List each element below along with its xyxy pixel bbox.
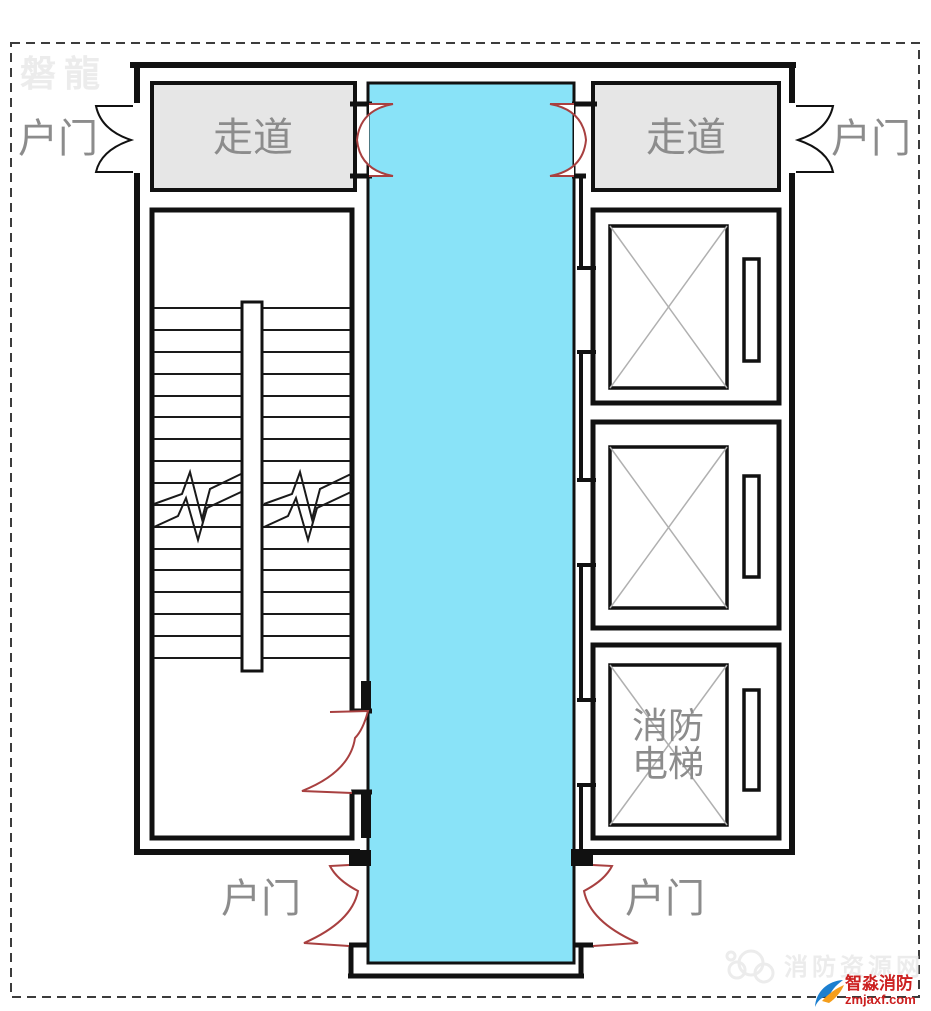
- door-label-top-left: 户门: [18, 117, 98, 161]
- stair-center-rail: [242, 302, 262, 671]
- elevator-1: [593, 210, 779, 403]
- elevator-2-x: [610, 447, 727, 608]
- corridor-left-box: 走道: [152, 83, 355, 190]
- door-label-bottom-left: 户门: [221, 877, 301, 921]
- door-symbol-entry-top-right: [796, 106, 833, 172]
- elevator-1-counterweight: [744, 259, 759, 361]
- logo-text: 智淼消防: [845, 973, 913, 993]
- floor-plan-page: 磐龍 走道 走道: [0, 0, 931, 1011]
- floor-plan-drawing: 磐龍 走道 走道: [0, 0, 931, 1011]
- elevator-2-counterweight: [744, 476, 759, 577]
- door-label-bottom-right: 户门: [625, 877, 705, 921]
- corridor-right-box: 走道: [593, 83, 779, 190]
- door-symbol-entry-top-left: [96, 106, 133, 172]
- lobby-cyan-area: [368, 83, 574, 963]
- elevator-1-x: [610, 226, 727, 388]
- fire-elevator-label-line2: 电梯: [632, 743, 704, 784]
- footer-marks: 消防资源网 智淼消防 zmjaxf.com: [727, 951, 924, 1007]
- zmjaxf-logo-icon: [815, 980, 844, 1007]
- elevator-2-shaft: [593, 422, 779, 628]
- lobby-cyan-rect: [368, 83, 574, 963]
- fire-elevator-label-line1: 消防: [632, 705, 704, 746]
- elevator-2: [593, 422, 779, 628]
- bottom-box-connector-right: [571, 850, 593, 866]
- bottom-box-connector-left: [349, 850, 371, 866]
- corridor-right-label: 走道: [646, 116, 726, 160]
- fire-elevator-counterweight: [744, 690, 759, 790]
- cloud-doodle-icon: [727, 951, 773, 982]
- corridor-left-label: 走道: [213, 116, 293, 160]
- door-label-top-right: 户门: [831, 117, 911, 161]
- watermark-top: 磐龍: [20, 53, 108, 94]
- logo-domain: zmjaxf.com: [845, 992, 916, 1007]
- fire-elevator: 消防 电梯: [593, 645, 779, 838]
- door-symbol-stair: [302, 711, 368, 793]
- door-symbol-lobby-bottom-left: [304, 865, 358, 946]
